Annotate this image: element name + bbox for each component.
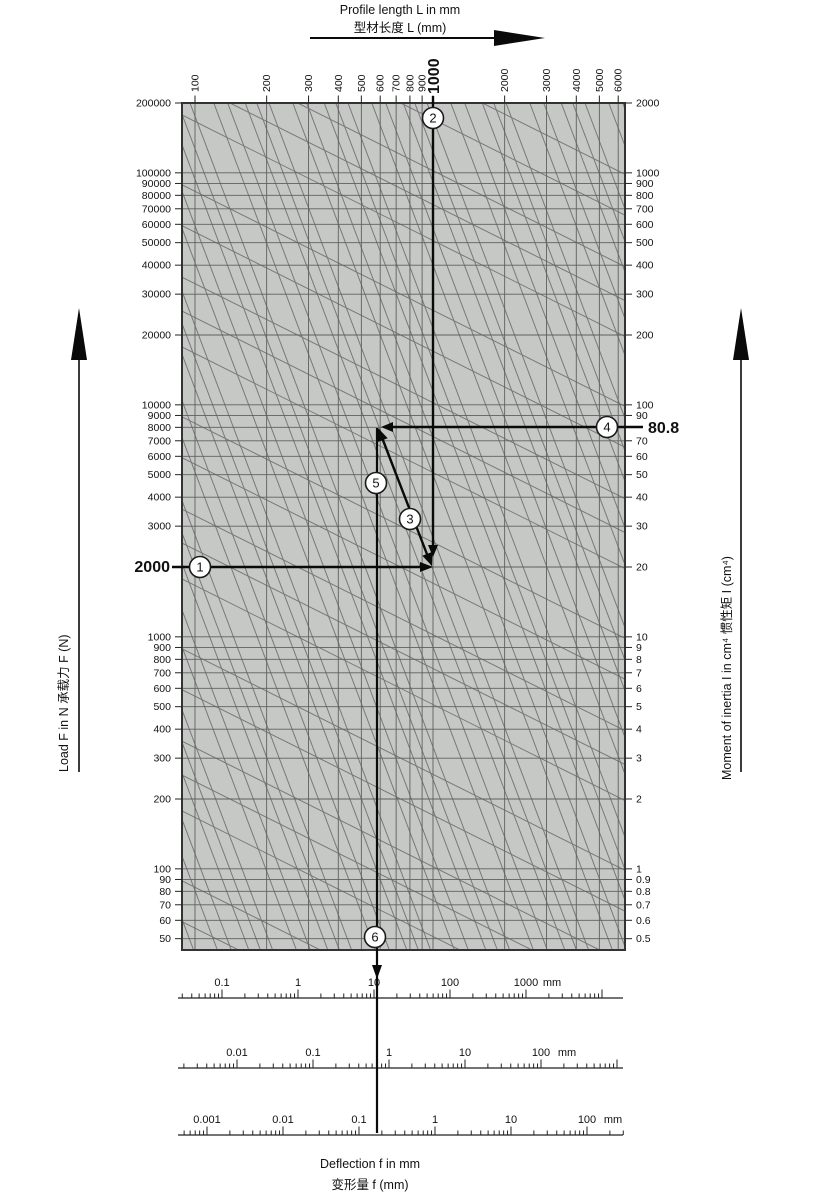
deflection-scale-label: 1 <box>432 1114 438 1126</box>
right-axis-tick-label: 0.9 <box>636 874 651 886</box>
right-axis-label: Moment of inertia I in cm⁴ 惯性矩 I (cm⁴) <box>719 556 734 780</box>
top-axis-title-zh: 型材长度 L (mm) <box>354 20 447 35</box>
deflection-scale-label: 0.01 <box>272 1114 293 1126</box>
example-step-marker: 6 <box>365 927 386 948</box>
right-axis-tick-label: 600 <box>636 219 654 231</box>
left-axis-tick-label: 70 <box>159 899 171 911</box>
top-axis-tick-label: 4000 <box>571 68 583 92</box>
right-axis-tick-label: 8 <box>636 654 642 666</box>
right-axis-tick-label: 90 <box>636 410 648 422</box>
right-axis-tick-label: 0.7 <box>636 899 651 911</box>
right-axis-tick-label: 9 <box>636 642 642 654</box>
left-axis-tick-label: 50000 <box>142 237 171 249</box>
deflection-scale-label: 100 <box>578 1114 596 1126</box>
right-axis-tick-label: 800 <box>636 190 654 202</box>
deflection-scale-label: 1 <box>295 977 301 989</box>
right-axis-tick-label: 2 <box>636 794 642 806</box>
deflection-scale-label: 0.1 <box>351 1114 366 1126</box>
left-axis-tick-label: 90000 <box>142 178 171 190</box>
example-length-value: 1000 <box>426 58 443 94</box>
deflection-scale-label: 0.001 <box>193 1114 221 1126</box>
left-axis-tick-label: 200000 <box>136 98 171 110</box>
example-step-marker: 3 <box>400 509 421 530</box>
right-axis-tick-label: 6 <box>636 683 642 695</box>
deflection-nomogram-chart: Profile length L in mm 型材长度 L (mm) 10020… <box>0 0 824 1200</box>
deflection-scale-label: 0.1 <box>214 977 229 989</box>
left-axis-tick-label: 200 <box>153 794 171 806</box>
left-axis-tick-label: 7000 <box>148 435 172 447</box>
top-axis-tick-label: 700 <box>391 74 403 92</box>
top-axis-tick-label: 5000 <box>594 68 606 92</box>
right-axis-tick-label: 500 <box>636 237 654 249</box>
right-axis-arrow-head <box>733 308 749 360</box>
left-axis-tick-label: 30000 <box>142 289 171 301</box>
deflection-nomogram-page: Profile length L in mm 型材长度 L (mm) 10020… <box>0 0 824 1200</box>
deflection-scale-label: 1000 <box>514 977 538 989</box>
right-axis-tick-label: 20 <box>636 562 648 574</box>
right-axis: 2000100090080070060050040030020010090706… <box>625 98 660 946</box>
example-step-marker: 4 <box>597 417 618 438</box>
left-axis-tick-label: 3000 <box>148 521 172 533</box>
diagonal-shallow-line <box>182 922 625 1143</box>
top-axis-tick-label: 200 <box>261 74 273 92</box>
example-load-value: 2000 <box>134 559 170 576</box>
left-axis-tick-label: 60 <box>159 915 171 927</box>
example-step-marker: 1 <box>190 557 211 578</box>
left-axis-tick-label: 600 <box>153 683 171 695</box>
left-axis-tick-label: 80000 <box>142 190 171 202</box>
top-axis-tick-label: 300 <box>303 74 315 92</box>
right-axis-tick-label: 40 <box>636 492 648 504</box>
left-axis-tick-label: 800 <box>153 654 171 666</box>
left-axis-tick-label: 900 <box>153 642 171 654</box>
deflection-scale-label: 100 <box>532 1047 550 1059</box>
example-step-number: 2 <box>429 111 436 126</box>
left-axis-tick-label: 20000 <box>142 330 171 342</box>
left-axis-tick-label: 4000 <box>148 492 172 504</box>
right-axis-tick-label: 300 <box>636 289 654 301</box>
right-axis-tick-label: 7 <box>636 667 642 679</box>
example-inertia-value: 80.8 <box>648 420 679 437</box>
right-axis-tick-label: 3 <box>636 753 642 765</box>
deflection-scale-label: 1 <box>386 1047 392 1059</box>
top-axis-tick-label: 600 <box>375 74 387 92</box>
left-axis-tick-label: 300 <box>153 753 171 765</box>
right-axis-tick-label: 5 <box>636 701 642 713</box>
right-axis-tick-label: 200 <box>636 330 654 342</box>
deflection-scale-unit: mm <box>543 977 561 989</box>
bottom-caption-zh: 变形量 f (mm) <box>331 1177 408 1192</box>
left-axis-tick-label: 500 <box>153 701 171 713</box>
left-axis-tick-label: 90 <box>159 874 171 886</box>
left-axis: 2000001000009000080000700006000050000400… <box>136 98 182 946</box>
right-axis-tick-label: 50 <box>636 469 648 481</box>
deflection-scale-unit: mm <box>604 1114 622 1126</box>
right-axis-tick-label: 30 <box>636 521 648 533</box>
top-axis: 1002003004005006007008009002000300040005… <box>190 68 625 103</box>
deflection-scale-label: 0.01 <box>226 1047 247 1059</box>
right-axis-tick-label: 60 <box>636 451 648 463</box>
top-axis-title-en: Profile length L in mm <box>340 3 460 17</box>
left-axis-tick-label: 8000 <box>148 422 172 434</box>
example-step-number: 6 <box>371 930 378 945</box>
right-axis-tick-label: 0.8 <box>636 886 651 898</box>
deflection-scales: 0.11101001000mm0.010.1110100mm0.0010.010… <box>178 977 623 1135</box>
left-axis-tick-label: 5000 <box>148 469 172 481</box>
left-axis-tick-label: 400 <box>153 724 171 736</box>
right-axis-tick-label: 0.6 <box>636 915 651 927</box>
top-axis-tick-label: 500 <box>356 74 368 92</box>
top-axis-tick-label: 2000 <box>499 68 511 92</box>
example-step-number: 1 <box>196 560 203 575</box>
example-step-number: 5 <box>372 476 379 491</box>
top-axis-tick-label: 3000 <box>541 68 553 92</box>
left-axis-tick-label: 50 <box>159 933 171 945</box>
example-step-number: 4 <box>603 420 610 435</box>
left-axis-label: Load F in N 承载力 F (N) <box>57 634 71 772</box>
right-axis-tick-label: 4 <box>636 724 642 736</box>
top-axis-tick-label: 100 <box>190 74 202 92</box>
deflection-scale-label: 10 <box>459 1047 471 1059</box>
right-axis-tick-label: 70 <box>636 435 648 447</box>
example-step-marker: 5 <box>366 473 387 494</box>
right-axis-tick-label: 900 <box>636 178 654 190</box>
left-axis-tick-label: 9000 <box>148 410 172 422</box>
example-step-marker: 2 <box>423 108 444 129</box>
top-axis-tick-label: 400 <box>333 74 345 92</box>
left-axis-tick-label: 40000 <box>142 260 171 272</box>
left-axis-tick-label: 700 <box>153 667 171 679</box>
right-axis-tick-label: 2000 <box>636 98 660 110</box>
right-axis-tick-label: 400 <box>636 260 654 272</box>
example-step-number: 3 <box>406 512 413 527</box>
top-axis-tick-label: 800 <box>404 74 416 92</box>
right-axis-tick-label: 0.5 <box>636 933 651 945</box>
deflection-scale-label: 100 <box>441 977 459 989</box>
left-axis-tick-label: 6000 <box>148 451 172 463</box>
bottom-caption-en: Deflection f in mm <box>320 1157 420 1171</box>
top-axis-arrow-head <box>494 30 545 46</box>
deflection-scale-label: 0.1 <box>305 1047 320 1059</box>
top-axis-tick-label: 6000 <box>613 68 625 92</box>
left-axis-tick-label: 80 <box>159 886 171 898</box>
left-axis-arrow-head <box>71 308 87 360</box>
left-axis-tick-label: 70000 <box>142 203 171 215</box>
left-axis-tick-label: 60000 <box>142 219 171 231</box>
deflection-scale-label: 10 <box>505 1114 517 1126</box>
deflection-scale-unit: mm <box>558 1047 576 1059</box>
deflection-scale-label: 10 <box>368 977 380 989</box>
right-axis-tick-label: 700 <box>636 203 654 215</box>
